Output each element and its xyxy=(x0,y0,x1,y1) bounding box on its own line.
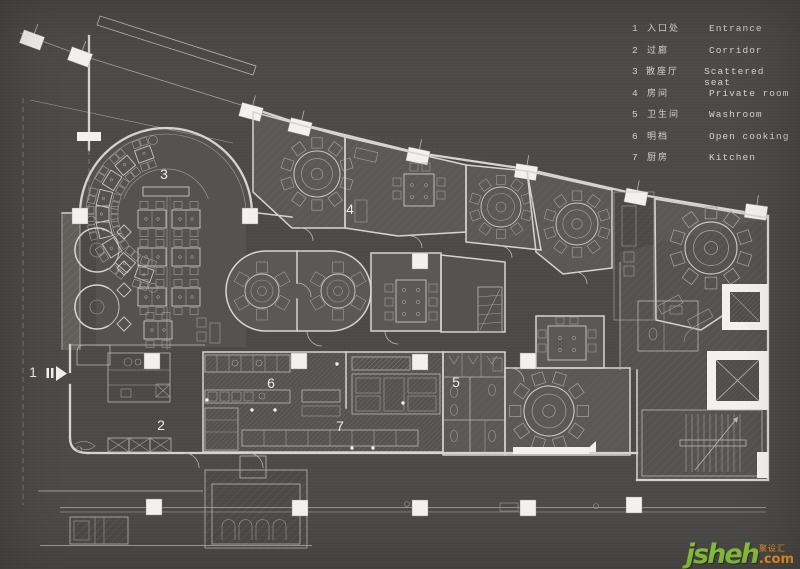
watermark-suffix: .com xyxy=(759,553,794,566)
plan-label-private-room: 4 xyxy=(346,201,354,217)
legend-english: Scattered seat xyxy=(704,66,792,88)
legend-row-entrance: 1 入口处 Entrance xyxy=(632,21,792,43)
legend-row-private-room: 4 房间 Private room xyxy=(632,86,792,108)
plan-label-open-cooking: 6 xyxy=(267,375,275,391)
legend-chinese: 过廊 xyxy=(647,43,709,56)
legend-row-kitchen: 7 厨房 Kitchen xyxy=(632,150,792,172)
legend-chinese: 厨房 xyxy=(647,150,709,163)
floor-mats xyxy=(108,438,171,452)
floor-plan-page: 1 2 3 4 5 6 7 1 入口处 Entrance 2 过廊 Corrid… xyxy=(0,0,800,569)
plan-label-scattered-seat: 3 xyxy=(160,166,168,182)
legend-row-washroom: 5 卫生间 Washroom xyxy=(632,107,792,129)
plan-label-kitchen: 7 xyxy=(336,418,344,434)
legend-number: 1 xyxy=(632,23,647,34)
corner-decor xyxy=(75,441,95,449)
legend-chinese: 卫生间 xyxy=(647,107,709,120)
legend-english: Corridor xyxy=(709,45,763,56)
legend-number: 7 xyxy=(632,152,647,163)
entrance-arrow xyxy=(47,366,68,381)
legend-chinese: 散座厅 xyxy=(646,64,704,77)
legend-number: 4 xyxy=(632,88,647,99)
legend-english: Entrance xyxy=(709,23,763,34)
plan-label-entrance: 1 xyxy=(29,364,37,380)
legend-chinese: 明档 xyxy=(647,129,709,142)
legend: 1 入口处 Entrance 2 过廊 Corridor 3 散座厅 Scatt… xyxy=(632,21,792,172)
watermark-brand: jsheh xyxy=(686,541,758,568)
legend-number: 6 xyxy=(632,131,647,142)
legend-english: Kitchen xyxy=(709,152,756,163)
legend-number: 2 xyxy=(632,45,647,56)
legend-chinese: 入口处 xyxy=(647,21,709,34)
legend-row-scattered-seat: 3 散座厅 Scattered seat xyxy=(632,64,792,86)
legend-chinese: 房间 xyxy=(647,86,709,99)
legend-english: Open cooking xyxy=(709,131,789,142)
elevator-shaft xyxy=(722,284,768,330)
legend-number: 3 xyxy=(632,66,646,77)
plan-label-washroom: 5 xyxy=(452,374,460,390)
legend-english: Washroom xyxy=(709,109,763,120)
legend-number: 5 xyxy=(632,109,647,120)
wall-marker xyxy=(77,132,101,141)
legend-english: Private room xyxy=(709,88,789,99)
plan-label-corridor: 2 xyxy=(157,417,165,433)
legend-row-corridor: 2 过廊 Corridor xyxy=(632,43,792,65)
legend-row-open-cooking: 6 明档 Open cooking xyxy=(632,129,792,151)
watermark-logo: jsheh 聚设汇 .com xyxy=(686,541,794,568)
elevator-shaft-2 xyxy=(707,351,768,410)
